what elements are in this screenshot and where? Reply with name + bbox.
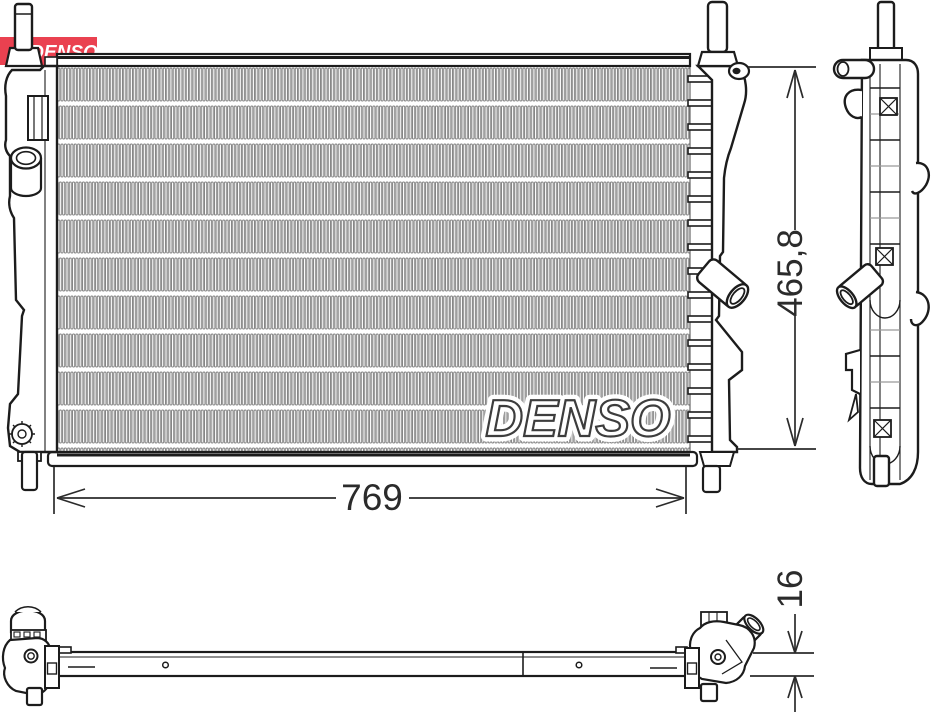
bottom-view (3, 607, 767, 705)
side-view (833, 2, 928, 486)
side-top-port (834, 60, 874, 78)
dimension-width: 769 (54, 467, 686, 518)
dimension-width-label: 769 (341, 477, 403, 518)
radiator-technical-drawing: DENSO (0, 0, 931, 725)
side-mounting-pin-top (870, 2, 902, 62)
top-header-plate (45, 54, 690, 66)
right-tank-ribs (688, 76, 714, 442)
mounting-pin-top-right (698, 2, 738, 66)
side-mounting-pin-bottom (874, 456, 889, 486)
outlet-pipe (695, 257, 752, 312)
mounting-pin-bottom-right (700, 452, 734, 492)
side-bracket-left (846, 350, 860, 394)
bottom-right-end (685, 611, 767, 701)
front-view: DENSO DENSO (5, 2, 752, 492)
side-spike-left (849, 394, 858, 420)
filler-neck (6, 4, 42, 66)
dimension-thickness-label: 16 (771, 570, 810, 609)
dimension-thickness: 16 (750, 570, 814, 712)
upper-bracket (28, 96, 48, 140)
denso-watermark: DENSO DENSO (486, 390, 671, 448)
drawing-canvas: DENSO (0, 0, 931, 725)
dimension-height: 465,8 (737, 67, 816, 449)
mounting-pin-bottom-left (18, 452, 41, 490)
bottom-bar (58, 652, 688, 676)
svg-text:DENSO: DENSO (486, 390, 671, 448)
bottom-left-end (3, 607, 59, 705)
bleed-screw (729, 63, 749, 79)
inlet-port (11, 148, 41, 197)
side-hook-upper-left (845, 90, 862, 118)
bottom-header-plate (48, 452, 697, 466)
dimension-height-label: 465,8 (771, 229, 810, 317)
